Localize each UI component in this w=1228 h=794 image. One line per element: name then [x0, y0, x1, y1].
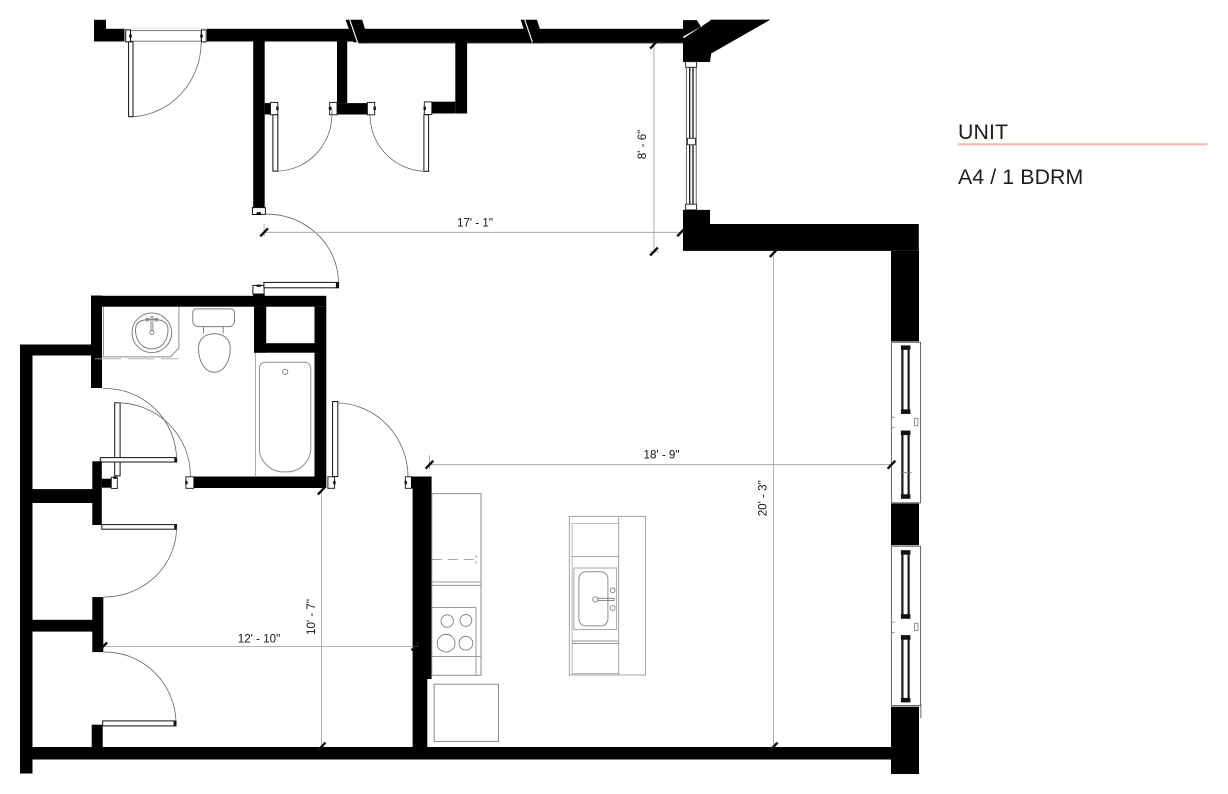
svg-text:12' - 10": 12' - 10": [238, 632, 280, 645]
svg-text:17' - 1": 17' - 1": [457, 217, 493, 230]
svg-text:18' - 9": 18' - 9": [644, 449, 680, 462]
svg-text:UNIT: UNIT: [958, 120, 1008, 144]
svg-text:A4 / 1 BDRM: A4 / 1 BDRM: [958, 165, 1083, 189]
svg-text:10' - 7": 10' - 7": [305, 599, 318, 635]
svg-text:8' - 6": 8' - 6": [636, 130, 649, 160]
svg-text:20' - 3": 20' - 3": [756, 480, 769, 516]
